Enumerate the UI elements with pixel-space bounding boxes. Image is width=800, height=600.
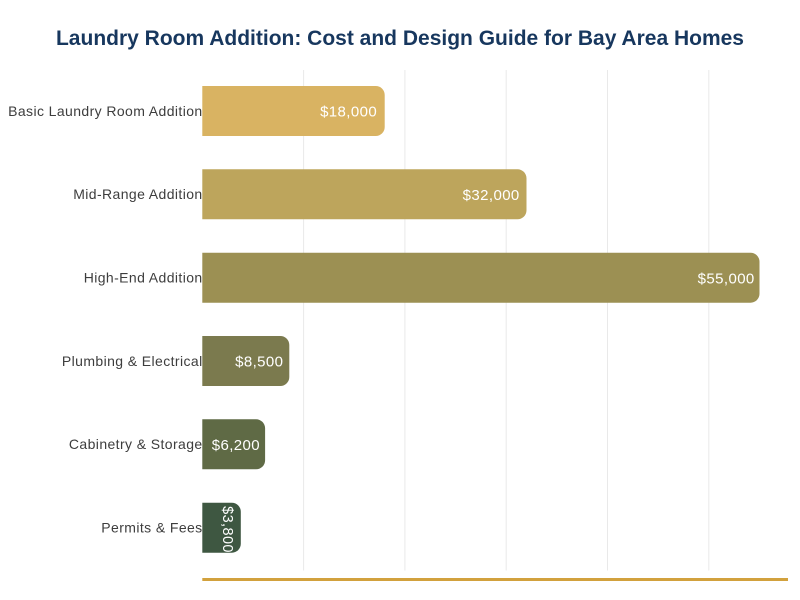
svg-text:$32,000: $32,000: [463, 187, 520, 204]
svg-text:Basic Laundry Room Addition: Basic Laundry Room Addition: [8, 103, 202, 119]
svg-text:Cabinetry & Storage: Cabinetry & Storage: [69, 436, 203, 452]
svg-text:High-End Addition: High-End Addition: [84, 270, 203, 286]
svg-text:$6,200: $6,200: [212, 437, 260, 454]
svg-text:Plumbing & Electrical: Plumbing & Electrical: [62, 353, 203, 369]
svg-text:Mid-Range Addition: Mid-Range Addition: [73, 186, 202, 202]
svg-text:$8,500: $8,500: [235, 354, 283, 371]
svg-text:$18,000: $18,000: [320, 104, 377, 121]
svg-text:Laundry Room Addition: Cost an: Laundry Room Addition: Cost and Design G…: [56, 27, 744, 50]
svg-text:$3,800: $3,800: [219, 506, 235, 553]
svg-text:Permits & Fees: Permits & Fees: [101, 520, 202, 536]
svg-text:$55,000: $55,000: [698, 271, 755, 288]
